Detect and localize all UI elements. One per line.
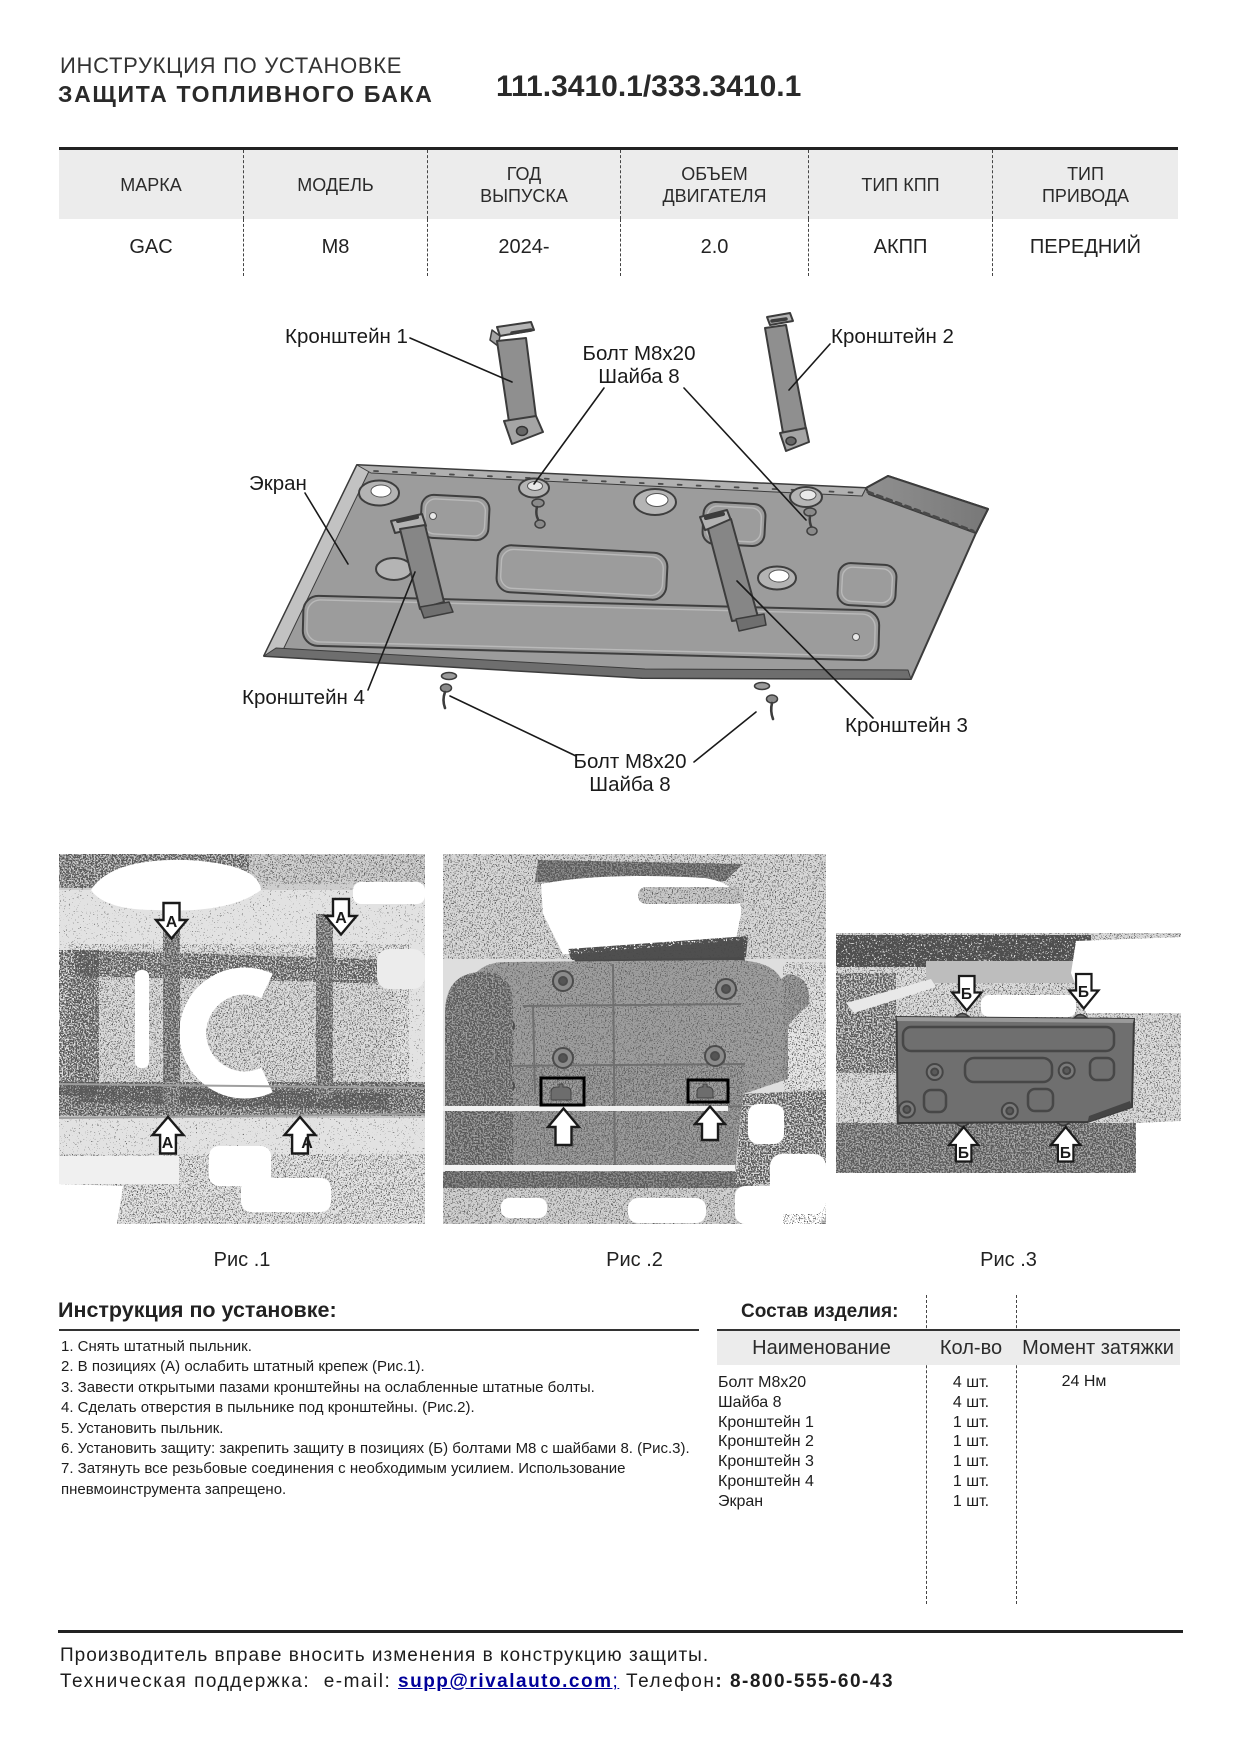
svg-text:Кронштейн 1: Кронштейн 1 [285,325,408,348]
svg-text:Шайба 8: Шайба 8 [589,773,670,796]
svg-text:Б: Б [958,1145,969,1162]
svg-text:А: А [166,914,178,931]
svg-text:Б: Б [1060,1145,1071,1162]
svg-text:Экран: Экран [249,472,307,495]
svg-text:Б: Б [961,986,972,1003]
svg-text:Шайба 8: Шайба 8 [598,365,679,388]
svg-text:Кронштейн 3: Кронштейн 3 [845,714,968,737]
svg-text:А: А [335,910,347,927]
svg-text:А: А [301,1135,313,1152]
svg-text:Болт М8х20: Болт М8х20 [574,750,687,773]
svg-text:А: А [162,1135,174,1152]
svg-text:Болт М8х20: Болт М8х20 [583,342,696,365]
svg-text:Б: Б [1078,984,1089,1001]
svg-text:Кронштейн 4: Кронштейн 4 [242,686,365,709]
svg-text:Кронштейн 2: Кронштейн 2 [831,325,954,348]
